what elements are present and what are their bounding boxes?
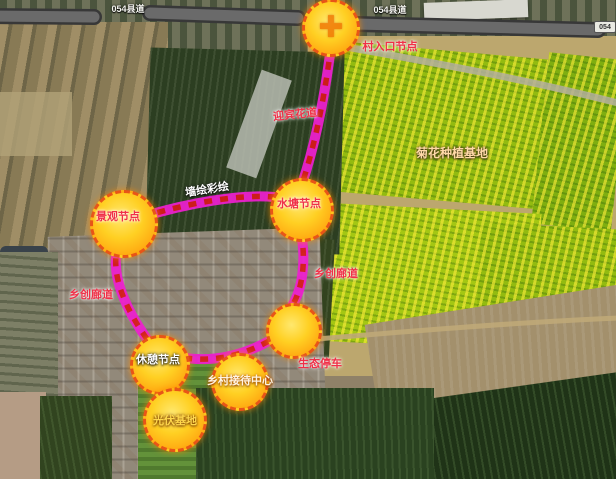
eco-parking-node: [266, 303, 322, 359]
label-village-entrance: 村入口节点: [363, 38, 418, 54]
label-rest-node: 休憩节点: [136, 351, 180, 367]
satellite-planning-map: ✚ 054县道 054县道 054 村入口节点 景观节点 水塘节点 休憩节点 生…: [0, 0, 616, 479]
entrance-cross-icon: ✚: [318, 13, 343, 43]
label-pv-base: 光伏基地: [153, 412, 197, 428]
landscape-node: [90, 190, 158, 258]
label-chrysanthemum-base: 菊花种植基地: [416, 144, 488, 161]
road-label-right: 054县道: [373, 3, 406, 16]
label-eco-parking: 生态停车: [298, 355, 342, 371]
county-road-overlay: [0, 13, 598, 30]
label-reception-center: 乡村接待中心: [207, 372, 273, 388]
road-number-badge: 054: [594, 21, 616, 33]
label-pond-node: 水塘节点: [277, 195, 321, 211]
village-entrance-node: ✚: [302, 0, 360, 57]
label-landscape-node: 景观节点: [96, 208, 140, 224]
road-label-left: 054县道: [111, 2, 144, 15]
label-rural-corridor-left: 乡创廊道: [69, 286, 113, 302]
label-rural-corridor-right: 乡创廊道: [314, 265, 358, 281]
